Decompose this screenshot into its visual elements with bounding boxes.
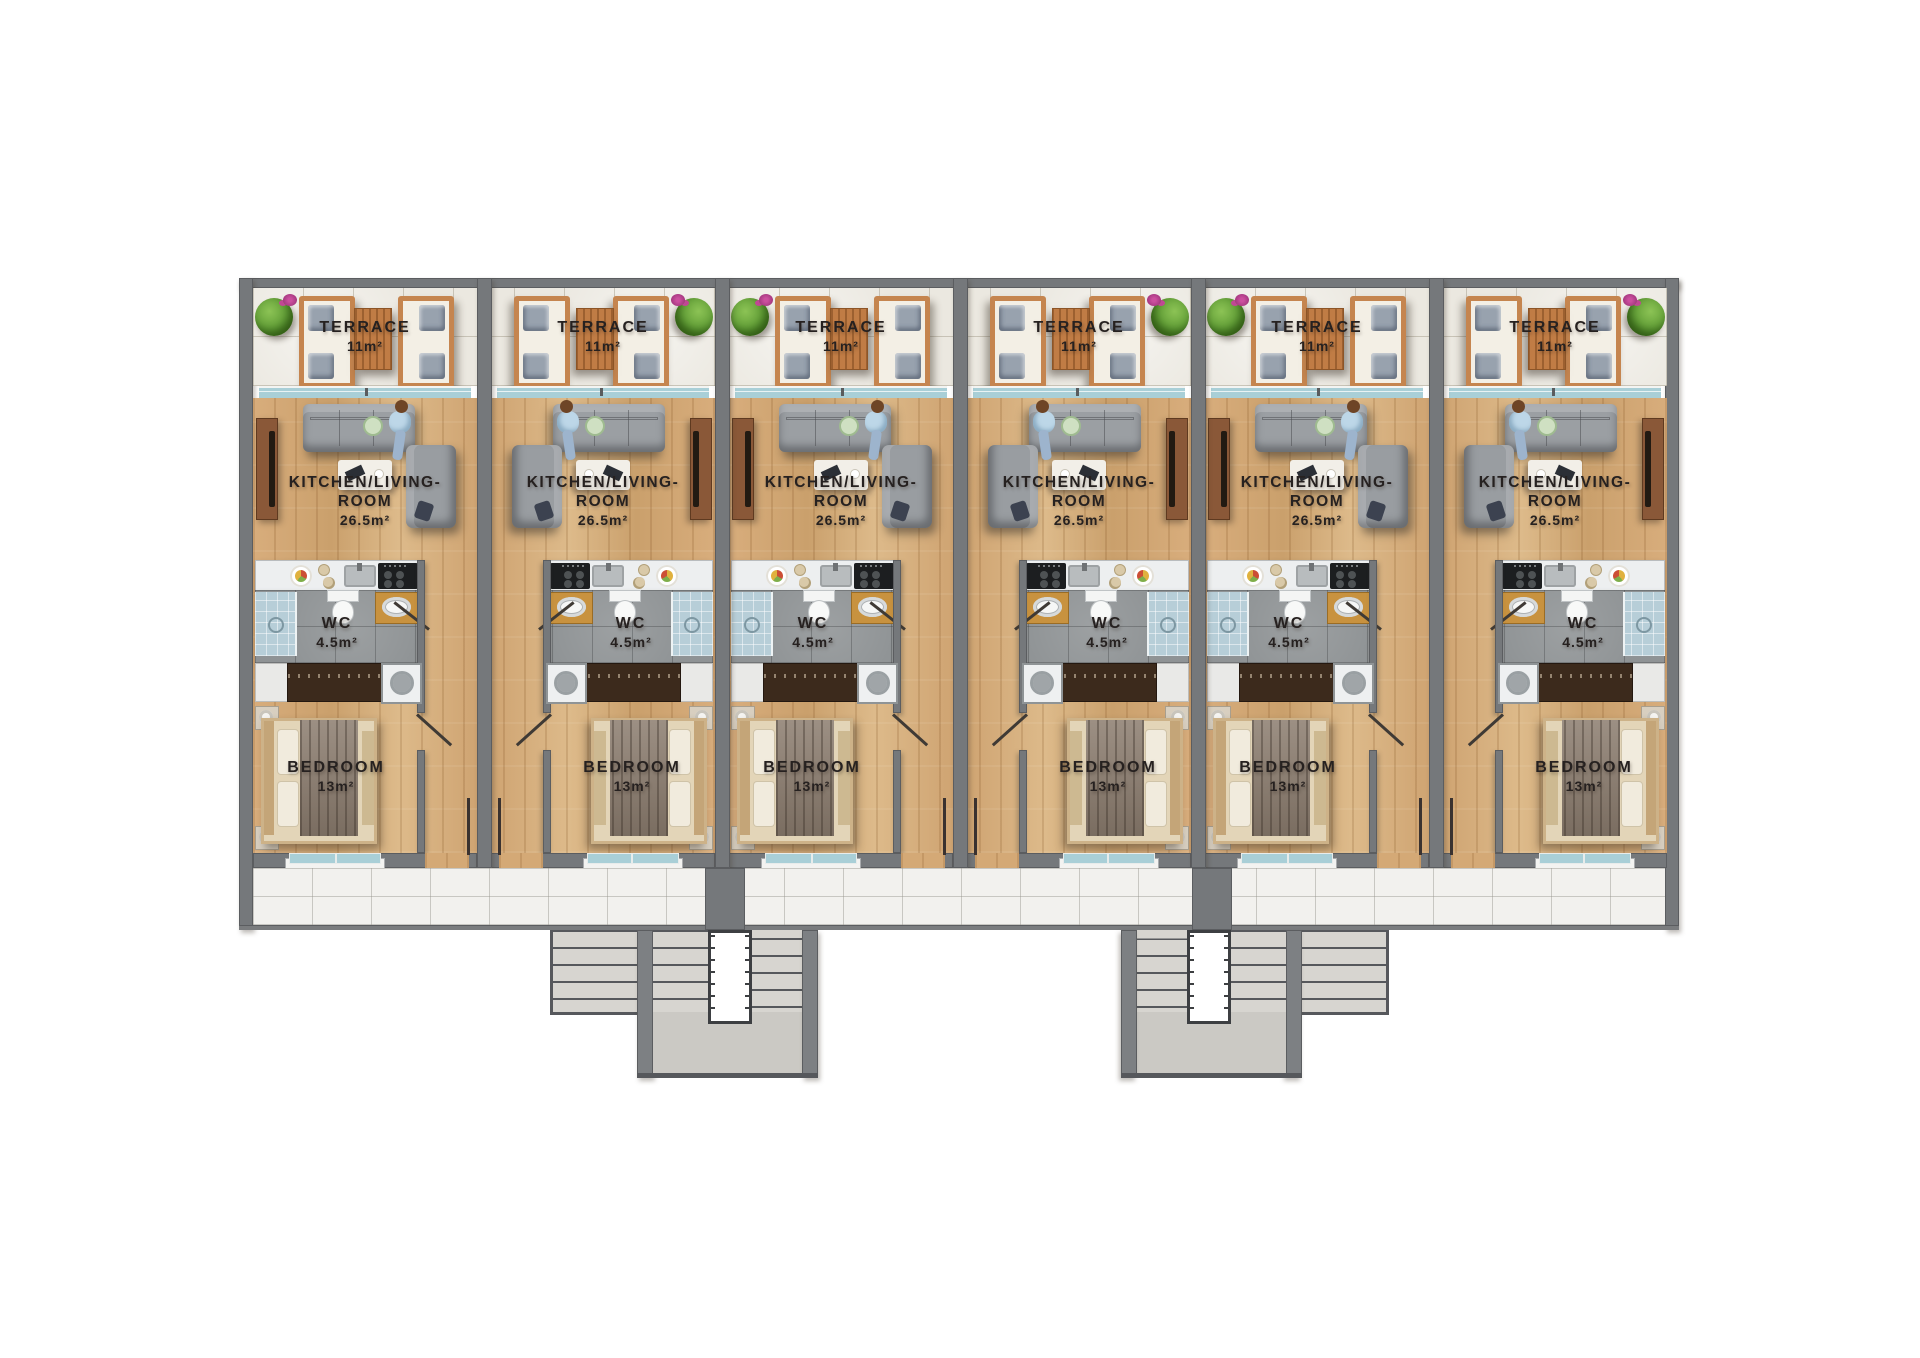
washing-machine (1333, 663, 1374, 704)
washing-machine (1022, 663, 1063, 704)
bedroom-label: BEDROOM 13m² (1025, 758, 1191, 795)
round-cushion (585, 416, 605, 436)
washing-machine (381, 663, 422, 704)
kitchen-counter (1024, 560, 1189, 592)
bedroom-label: BEDROOM 13m² (729, 758, 895, 795)
stairwell-connector-wall (705, 868, 745, 930)
kitchen-sink (592, 565, 624, 587)
kitchen-jars (1270, 564, 1282, 576)
apartment-unit: TERRACE 11m² KITCHEN/LIVING- ROOM 26.5m² (729, 288, 953, 868)
food-plate (1608, 565, 1630, 587)
apartment-unit: TERRACE 11m² KITCHEN/LIVING- ROOM 26.5m² (491, 288, 715, 868)
round-cushion (1315, 416, 1335, 436)
stairwell-bottom-wall (637, 1073, 818, 1078)
terrace-label: TERRACE 11m² (253, 318, 477, 355)
wardrobe (1537, 663, 1633, 702)
floor-plan: TERRACE 11m² KITCHEN/LIVING- ROOM 26.5m² (239, 278, 1679, 1080)
wardrobe (585, 663, 681, 702)
wardrobe (1061, 663, 1157, 702)
living-room-label: KITCHEN/LIVING- ROOM 26.5m² (491, 474, 715, 529)
stair-void (708, 930, 752, 1024)
living-room-label: KITCHEN/LIVING- ROOM 26.5m² (729, 474, 953, 529)
toilet (1085, 590, 1117, 602)
stairwell-wall (802, 930, 818, 1078)
kitchen-sink (344, 565, 376, 587)
terrace-label: TERRACE 11m² (729, 318, 953, 355)
unit-divider-wall (1191, 278, 1206, 868)
kitchen-sink (820, 565, 852, 587)
bedroom-window (1063, 853, 1155, 864)
toilet (327, 590, 359, 602)
food-plate (290, 565, 312, 587)
stairwell-wall (637, 930, 653, 1078)
apartment-unit: TERRACE 11m² KITCHEN/LIVING- ROOM 26.5m² (1205, 288, 1429, 868)
wc-label: WC 4.5m² (253, 614, 421, 651)
entrance-door-leaf (1450, 798, 1453, 855)
cooktop (378, 563, 418, 589)
cooktop (1026, 563, 1066, 589)
bedroom-window (1539, 853, 1631, 864)
terrace-label: TERRACE 11m² (491, 318, 715, 355)
food-plate (1132, 565, 1154, 587)
entrance-door-leaf (1419, 798, 1422, 855)
entrance-doorway (425, 853, 469, 868)
cooktop (1502, 563, 1542, 589)
kitchen-sink (1296, 565, 1328, 587)
toilet (1561, 590, 1593, 602)
toilet (803, 590, 835, 602)
toilet (609, 590, 641, 602)
apartment-unit: TERRACE 11m² KITCHEN/LIVING- ROOM 26.5m² (253, 288, 477, 868)
closet-cabinet (1631, 663, 1665, 702)
food-plate (1242, 565, 1264, 587)
stairwell-connector-wall (1192, 868, 1232, 930)
bedroom-window (765, 853, 857, 864)
bedroom-label: BEDROOM 13m² (549, 758, 715, 795)
unit-divider-wall (953, 278, 968, 868)
bedroom-label: BEDROOM 13m² (1501, 758, 1667, 795)
kitchen-jars (1114, 564, 1126, 576)
kitchen-counter (548, 560, 713, 592)
closet-cabinet (679, 663, 713, 702)
bedroom-window (587, 853, 679, 864)
washing-machine (1498, 663, 1539, 704)
unit-divider-wall (715, 278, 730, 868)
kitchen-sink (1544, 565, 1576, 587)
round-cushion (363, 416, 383, 436)
closet-cabinet (731, 663, 765, 702)
living-room-label: KITCHEN/LIVING- ROOM 26.5m² (1443, 474, 1667, 529)
apartment-unit: TERRACE 11m² KITCHEN/LIVING- ROOM 26.5m² (967, 288, 1191, 868)
living-room-label: KITCHEN/LIVING- ROOM 26.5m² (1205, 474, 1429, 529)
entrance-door-leaf (943, 798, 946, 855)
cooktop (1330, 563, 1370, 589)
closet-cabinet (1155, 663, 1189, 702)
entrance-door-leaf (498, 798, 501, 855)
terrace-label: TERRACE 11m² (1443, 318, 1667, 355)
unit-divider-wall (1429, 278, 1444, 868)
living-room-label: KITCHEN/LIVING- ROOM 26.5m² (253, 474, 477, 529)
kitchen-counter (1500, 560, 1665, 592)
outer-steps (550, 930, 640, 1015)
staircase-right (1121, 930, 1393, 1078)
wc-label: WC 4.5m² (1499, 614, 1667, 651)
bedroom-label: BEDROOM 13m² (1205, 758, 1371, 795)
unit-divider-wall (477, 278, 492, 868)
kitchen-counter (731, 560, 896, 592)
entrance-doorway (1451, 853, 1495, 868)
entrance-doorway (975, 853, 1019, 868)
stair-flight (1137, 930, 1193, 1012)
outer-steps (1299, 930, 1389, 1015)
wc-label: WC 4.5m² (1023, 614, 1191, 651)
bedroom-window (289, 853, 381, 864)
stair-void (1187, 930, 1231, 1024)
round-cushion (839, 416, 859, 436)
bedroom-window (1241, 853, 1333, 864)
floor-plan-canvas: TERRACE 11m² KITCHEN/LIVING- ROOM 26.5m² (0, 0, 1920, 1358)
kitchen-counter (255, 560, 420, 592)
entrance-door-leaf (467, 798, 470, 855)
stair-landing (1137, 930, 1286, 1073)
building-left-wall (239, 278, 253, 930)
kitchen-jars (638, 564, 650, 576)
wc-label: WC 4.5m² (1205, 614, 1373, 651)
kitchen-sink (1068, 565, 1100, 587)
walkway-edge (239, 925, 1679, 930)
walkway (253, 868, 1665, 925)
stair-flight (653, 930, 708, 1012)
stairwell-wall (1286, 930, 1302, 1078)
living-room-label: KITCHEN/LIVING- ROOM 26.5m² (967, 474, 1191, 529)
food-plate (766, 565, 788, 587)
staircase-left (546, 930, 818, 1078)
terrace-label: TERRACE 11m² (967, 318, 1191, 355)
stair-flight (1231, 930, 1286, 1012)
wc-label: WC 4.5m² (547, 614, 715, 651)
round-cushion (1061, 416, 1081, 436)
entrance-doorway (901, 853, 945, 868)
stair-landing (653, 930, 802, 1073)
round-cushion (1537, 416, 1557, 436)
building-right-wall (1665, 278, 1679, 930)
cooktop (550, 563, 590, 589)
kitchen-jars (1590, 564, 1602, 576)
terrace-label: TERRACE 11m² (1205, 318, 1429, 355)
entrance-doorway (499, 853, 543, 868)
cooktop (854, 563, 894, 589)
stair-flight (746, 930, 802, 1012)
toilet (1279, 590, 1311, 602)
stairwell-bottom-wall (1121, 1073, 1302, 1078)
washing-machine (857, 663, 898, 704)
food-plate (656, 565, 678, 587)
closet-cabinet (1207, 663, 1241, 702)
entrance-doorway (1377, 853, 1421, 868)
bedroom-label: BEDROOM 13m² (253, 758, 419, 795)
entrance-door-leaf (974, 798, 977, 855)
closet-cabinet (255, 663, 289, 702)
wardrobe (763, 663, 859, 702)
kitchen-jars (318, 564, 330, 576)
washing-machine (546, 663, 587, 704)
apartment-unit: TERRACE 11m² KITCHEN/LIVING- ROOM 26.5m² (1443, 288, 1667, 868)
wc-label: WC 4.5m² (729, 614, 897, 651)
kitchen-jars (794, 564, 806, 576)
wardrobe (1239, 663, 1335, 702)
wardrobe (287, 663, 383, 702)
kitchen-counter (1207, 560, 1372, 592)
stairwell-wall (1121, 930, 1137, 1078)
